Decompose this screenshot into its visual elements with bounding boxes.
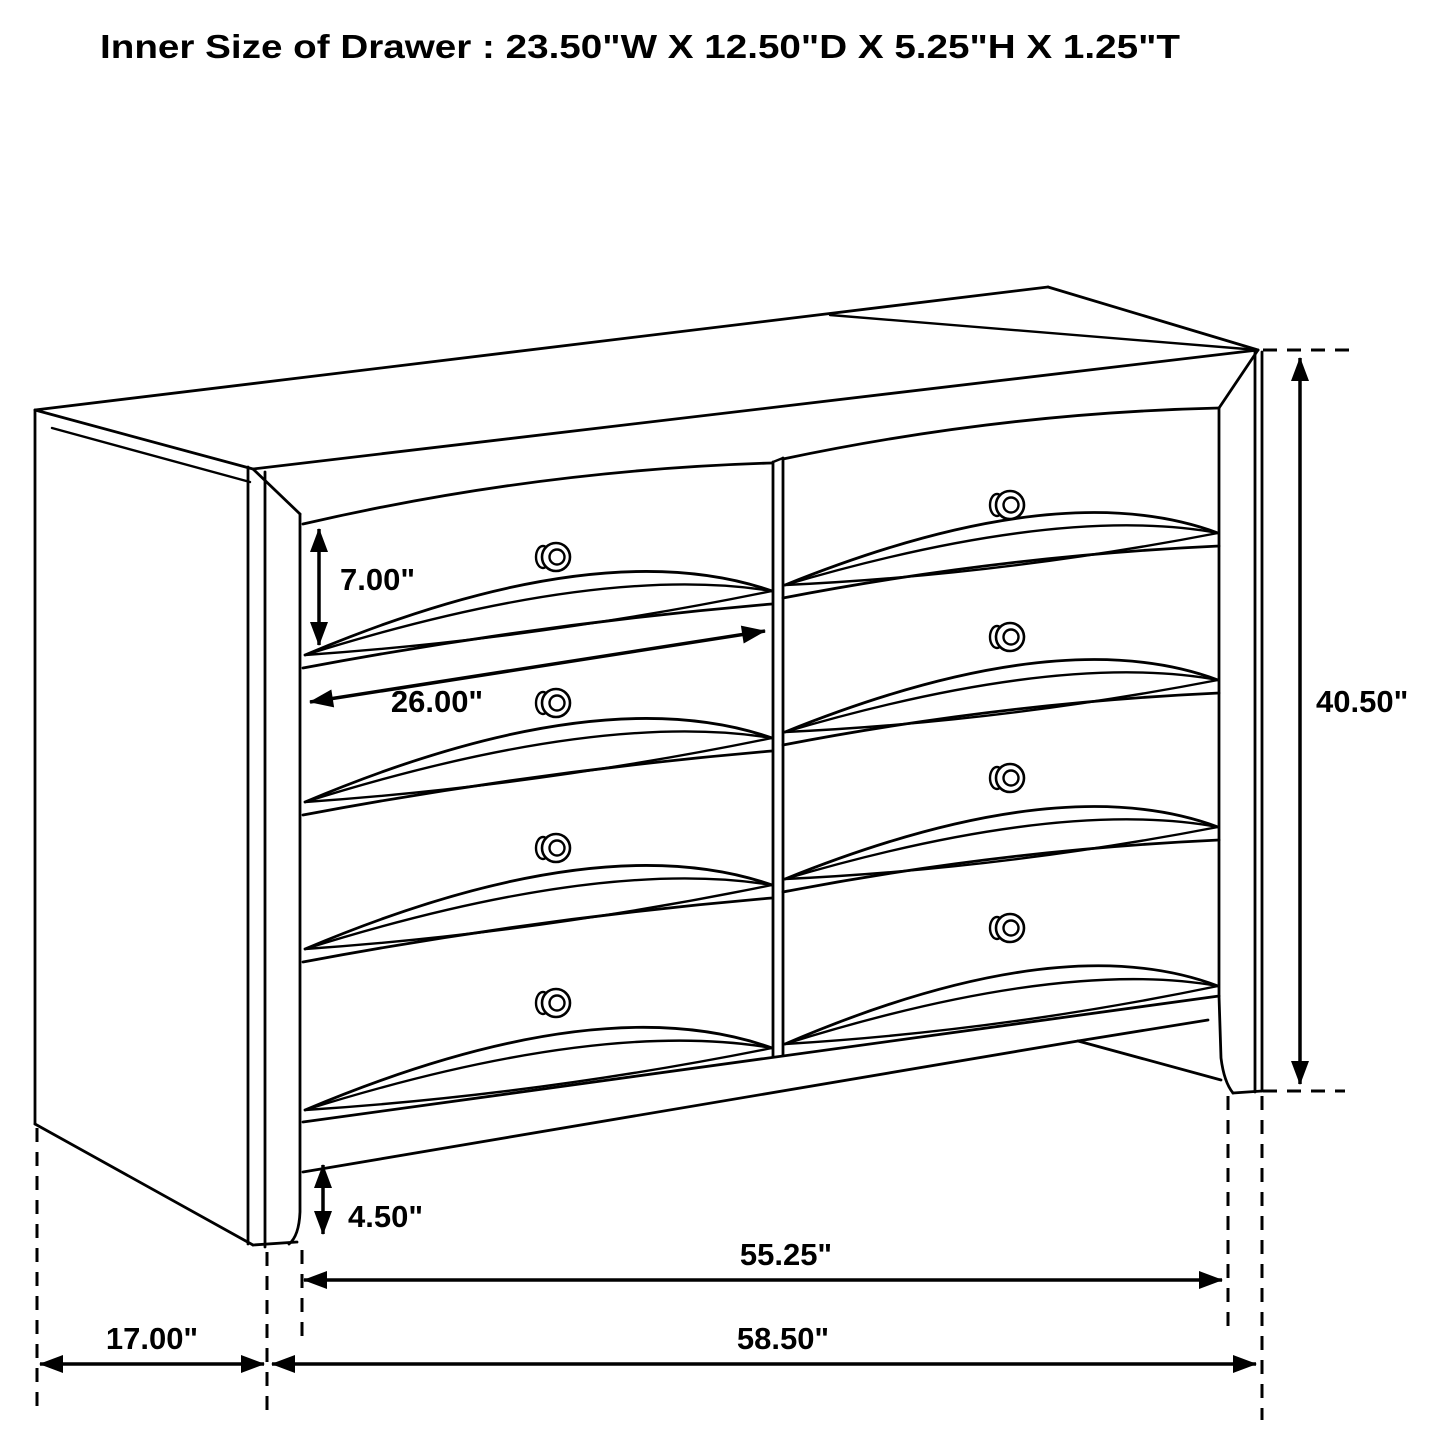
drawer-knob [536, 989, 570, 1017]
knob-face-icon [996, 764, 1024, 792]
dim-label-depth: 17.00" [106, 1321, 198, 1356]
pull-lens-mid [785, 672, 1218, 732]
drawer-knob [536, 689, 570, 717]
dim-depth: 17.00" [40, 1321, 264, 1364]
dim-overall-height: 40.50" [1300, 358, 1408, 1084]
pull-lens-mid [305, 878, 772, 949]
dim-label-overall-width: 58.50" [737, 1321, 829, 1356]
drawer-top-edge [783, 408, 1219, 459]
drawer-column-left [303, 463, 772, 1110]
dim-leg-height: 4.50" [323, 1165, 423, 1234]
pull-lens-lower [785, 680, 1218, 732]
dimension-annotations: 7.00" 26.00" 40.50" 4.50" 55.25" 58.50" … [40, 358, 1408, 1364]
pull-lens-lower [305, 591, 772, 655]
right-bracket-top-edge [1078, 1020, 1208, 1041]
drawer-knob [990, 491, 1024, 519]
pull-lens-lower [305, 885, 772, 949]
pull-lens-lower [785, 827, 1218, 879]
side-panel [35, 410, 253, 1245]
dim-label-case-width: 55.25" [740, 1237, 832, 1272]
drawer-divider [783, 546, 1219, 598]
dim-overall-width: 58.50" [272, 1321, 1256, 1364]
pull-lens-lower [305, 738, 772, 802]
knob-face-icon [542, 989, 570, 1017]
knob-face-icon [996, 623, 1024, 651]
side-panel-bottom-edge [35, 1124, 253, 1245]
knob-face-icon [542, 689, 570, 717]
pull-lens-mid [305, 731, 772, 802]
top-left-band-line [52, 428, 250, 482]
drawer-knob [536, 543, 570, 571]
drawer-knob [990, 623, 1024, 651]
dim-drawer-opening-width: 26.00" [310, 631, 765, 719]
drawer-top-edge [303, 463, 772, 524]
page-title: Inner Size of Drawer : 23.50"W X 12.50"D… [100, 28, 1180, 65]
front-right-corner-bevel [1219, 350, 1258, 408]
center-stile-top-edge [773, 458, 783, 462]
extension-lines [37, 350, 1358, 1420]
drawer-knob [990, 914, 1024, 942]
pull-lens-mid [785, 525, 1218, 585]
dim-label-overall-height: 40.50" [1316, 684, 1408, 719]
dresser-dimension-diagram: Inner Size of Drawer : 23.50"W X 12.50"D… [0, 0, 1445, 1445]
frame-top-left-miter [253, 469, 300, 514]
bottom-rail-top-edge [303, 996, 1219, 1122]
pull-lens-lower [785, 533, 1218, 585]
knob-face-icon [542, 834, 570, 862]
left-stile-inner-edge [289, 514, 300, 1244]
drawer-divider [783, 840, 1219, 892]
knob-face-icon [542, 543, 570, 571]
pull-lens-lower [305, 1048, 772, 1110]
knob-face-icon [996, 491, 1024, 519]
top-panel [35, 287, 1258, 482]
dim-label-leg-height: 4.50" [348, 1199, 423, 1234]
pull-lens-mid [785, 979, 1218, 1044]
page: Inner Size of Drawer : 23.50"W X 12.50"D… [0, 0, 1445, 1445]
top-right-bevel-line [830, 315, 1258, 350]
right-bracket-lower-edge [1078, 1041, 1221, 1080]
right-leg-inner-curve [1219, 996, 1233, 1093]
dim-arrow [310, 631, 765, 702]
pull-lens-mid [305, 1041, 772, 1110]
drawer-divider [783, 693, 1219, 745]
drawer-knob [536, 834, 570, 862]
pull-lens-upper [305, 1027, 772, 1110]
dim-case-width: 55.25" [304, 1237, 1222, 1280]
pull-lens-mid [785, 819, 1218, 879]
face-frame [253, 352, 1262, 1247]
top-front-edge [253, 350, 1258, 469]
dim-label-drawer-opening-width: 26.00" [391, 684, 483, 719]
drawer-knob [990, 764, 1024, 792]
dim-label-drawer-front-height: 7.00" [340, 562, 415, 597]
right-foot-bottom [1233, 1091, 1262, 1093]
dresser-line-art [35, 287, 1262, 1247]
top-left-edge [35, 410, 253, 469]
pull-lens-lower [785, 986, 1218, 1044]
knob-face-icon [996, 914, 1024, 942]
